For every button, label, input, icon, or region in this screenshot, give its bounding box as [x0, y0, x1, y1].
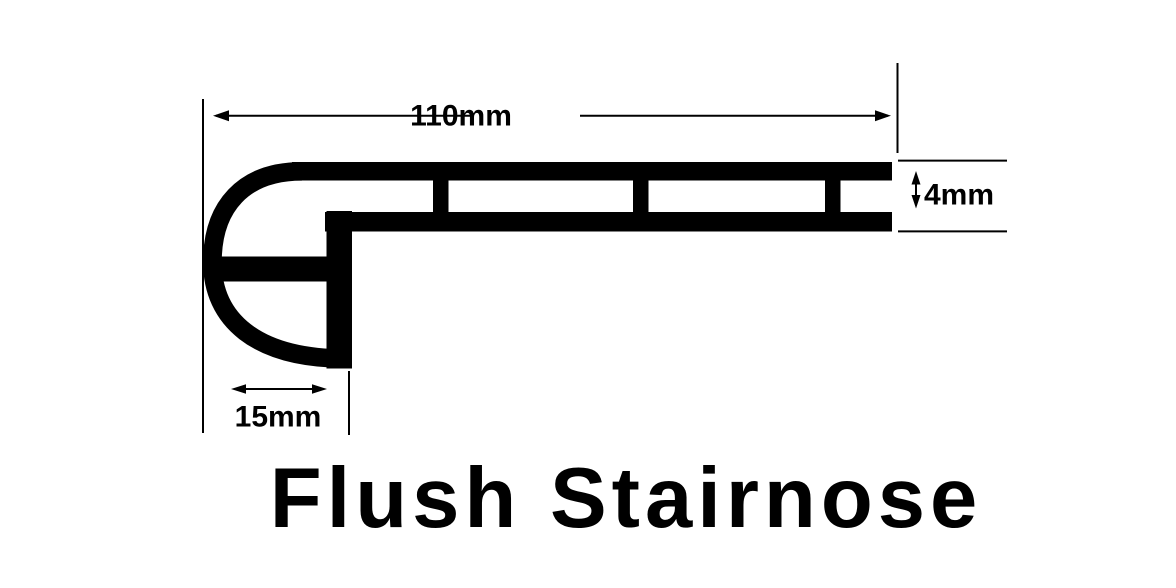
profile-rib-3 — [825, 177, 841, 215]
nose-arrowhead-left — [231, 384, 246, 393]
nose-depth-dimension-label: 15mm — [235, 401, 322, 434]
profile-rib-2 — [633, 177, 649, 215]
diagram-title: Flush Stairnose — [270, 451, 983, 546]
profile-mid-web — [214, 257, 334, 282]
diagram-page: 110mm 4mm 15mm Flush Stairnose — [0, 0, 1176, 588]
thickness-arrowhead-up — [912, 171, 921, 185]
nose-arrowhead-right — [312, 384, 327, 393]
width-dimension-label: 110mm — [410, 100, 512, 133]
profile-rib-1 — [433, 177, 449, 215]
profile-cross-section — [212, 162, 892, 369]
dimension-annotations — [203, 63, 1007, 435]
thickness-dimension-label: 4mm — [924, 179, 994, 212]
width-arrowhead-right — [875, 110, 891, 121]
profile-vertical-wall — [327, 211, 353, 369]
stairnose-diagram: 110mm 4mm 15mm Flush Stairnose — [0, 0, 1176, 588]
width-arrowhead-left — [213, 110, 229, 121]
profile-bottom-flange — [325, 212, 892, 232]
thickness-arrowhead-down — [912, 195, 921, 209]
profile-top-flange — [292, 162, 892, 181]
